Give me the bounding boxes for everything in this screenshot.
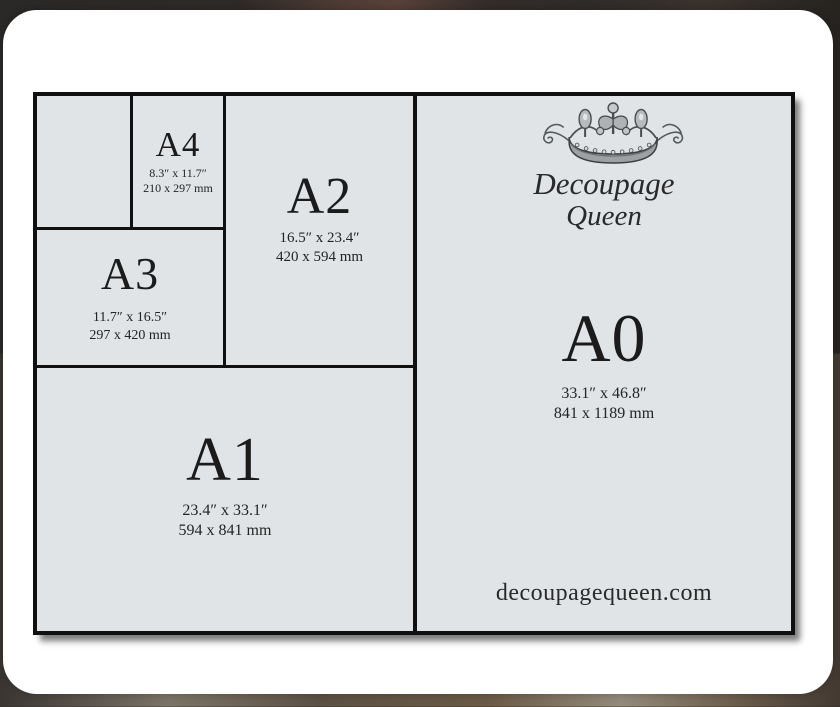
size-mm-a0: 841 x 1189 mm <box>417 404 791 424</box>
size-code-a3: A3 <box>101 251 159 297</box>
box-a0: Decoupage Queen A0 33.1″ x 46.8″ 841 x 1… <box>417 96 791 631</box>
paper-size-diagram: A4 8.3″ x 11.7″ 210 x 297 mm A3 11.7″ x … <box>33 92 795 635</box>
size-inches-a3: 11.7″ x 16.5″ <box>89 309 170 327</box>
size-code-a2: A2 <box>287 171 353 223</box>
size-inches-a0: 33.1″ x 46.8″ <box>417 384 791 404</box>
brand-name-line2: Queen <box>417 201 791 231</box>
size-inches-a4: 8.3″ x 11.7″ <box>143 166 213 181</box>
size-code-a0: A0 <box>417 304 791 372</box>
size-mm-a4: 210 x 297 mm <box>143 181 213 196</box>
box-a1: A1 23.4″ x 33.1″ 594 x 841 mm <box>37 368 413 631</box>
size-code-a1: A1 <box>186 429 264 491</box>
size-dims-a4: 8.3″ x 11.7″ 210 x 297 mm <box>143 166 213 196</box>
size-dims-a3: 11.7″ x 16.5″ 297 x 420 mm <box>89 309 170 344</box>
size-code-a4: A4 <box>156 127 201 162</box>
size-dims-a2: 16.5″ x 23.4″ 420 x 594 mm <box>276 229 363 267</box>
brand-name: Decoupage Queen <box>417 168 791 231</box>
box-a2: A2 16.5″ x 23.4″ 420 x 594 mm <box>226 96 413 365</box>
box-a3: A3 11.7″ x 16.5″ 297 x 420 mm <box>37 230 223 365</box>
brand-website: decoupagequeen.com <box>417 580 791 607</box>
size-inches-a2: 16.5″ x 23.4″ <box>276 229 363 248</box>
size-dims-a1: 23.4″ x 33.1″ 594 x 841 mm <box>179 501 272 541</box>
size-mm-a2: 420 x 594 mm <box>276 248 363 267</box>
size-inches-a1: 23.4″ x 33.1″ <box>179 501 272 521</box>
box-blank <box>37 96 130 227</box>
box-a4: A4 8.3″ x 11.7″ 210 x 297 mm <box>133 96 223 227</box>
photo-background: A4 8.3″ x 11.7″ 210 x 297 mm A3 11.7″ x … <box>0 0 840 707</box>
crown-icon <box>537 100 689 170</box>
size-label-a0: A0 33.1″ x 46.8″ 841 x 1189 mm <box>417 304 791 424</box>
diagram-grid: A4 8.3″ x 11.7″ 210 x 297 mm A3 11.7″ x … <box>37 96 791 631</box>
brand-name-line1: Decoupage <box>417 168 791 201</box>
size-mm-a3: 297 x 420 mm <box>89 327 170 345</box>
size-dims-a0: 33.1″ x 46.8″ 841 x 1189 mm <box>417 384 791 424</box>
size-mm-a1: 594 x 841 mm <box>179 521 272 541</box>
product-image-card: A4 8.3″ x 11.7″ 210 x 297 mm A3 11.7″ x … <box>3 10 833 694</box>
